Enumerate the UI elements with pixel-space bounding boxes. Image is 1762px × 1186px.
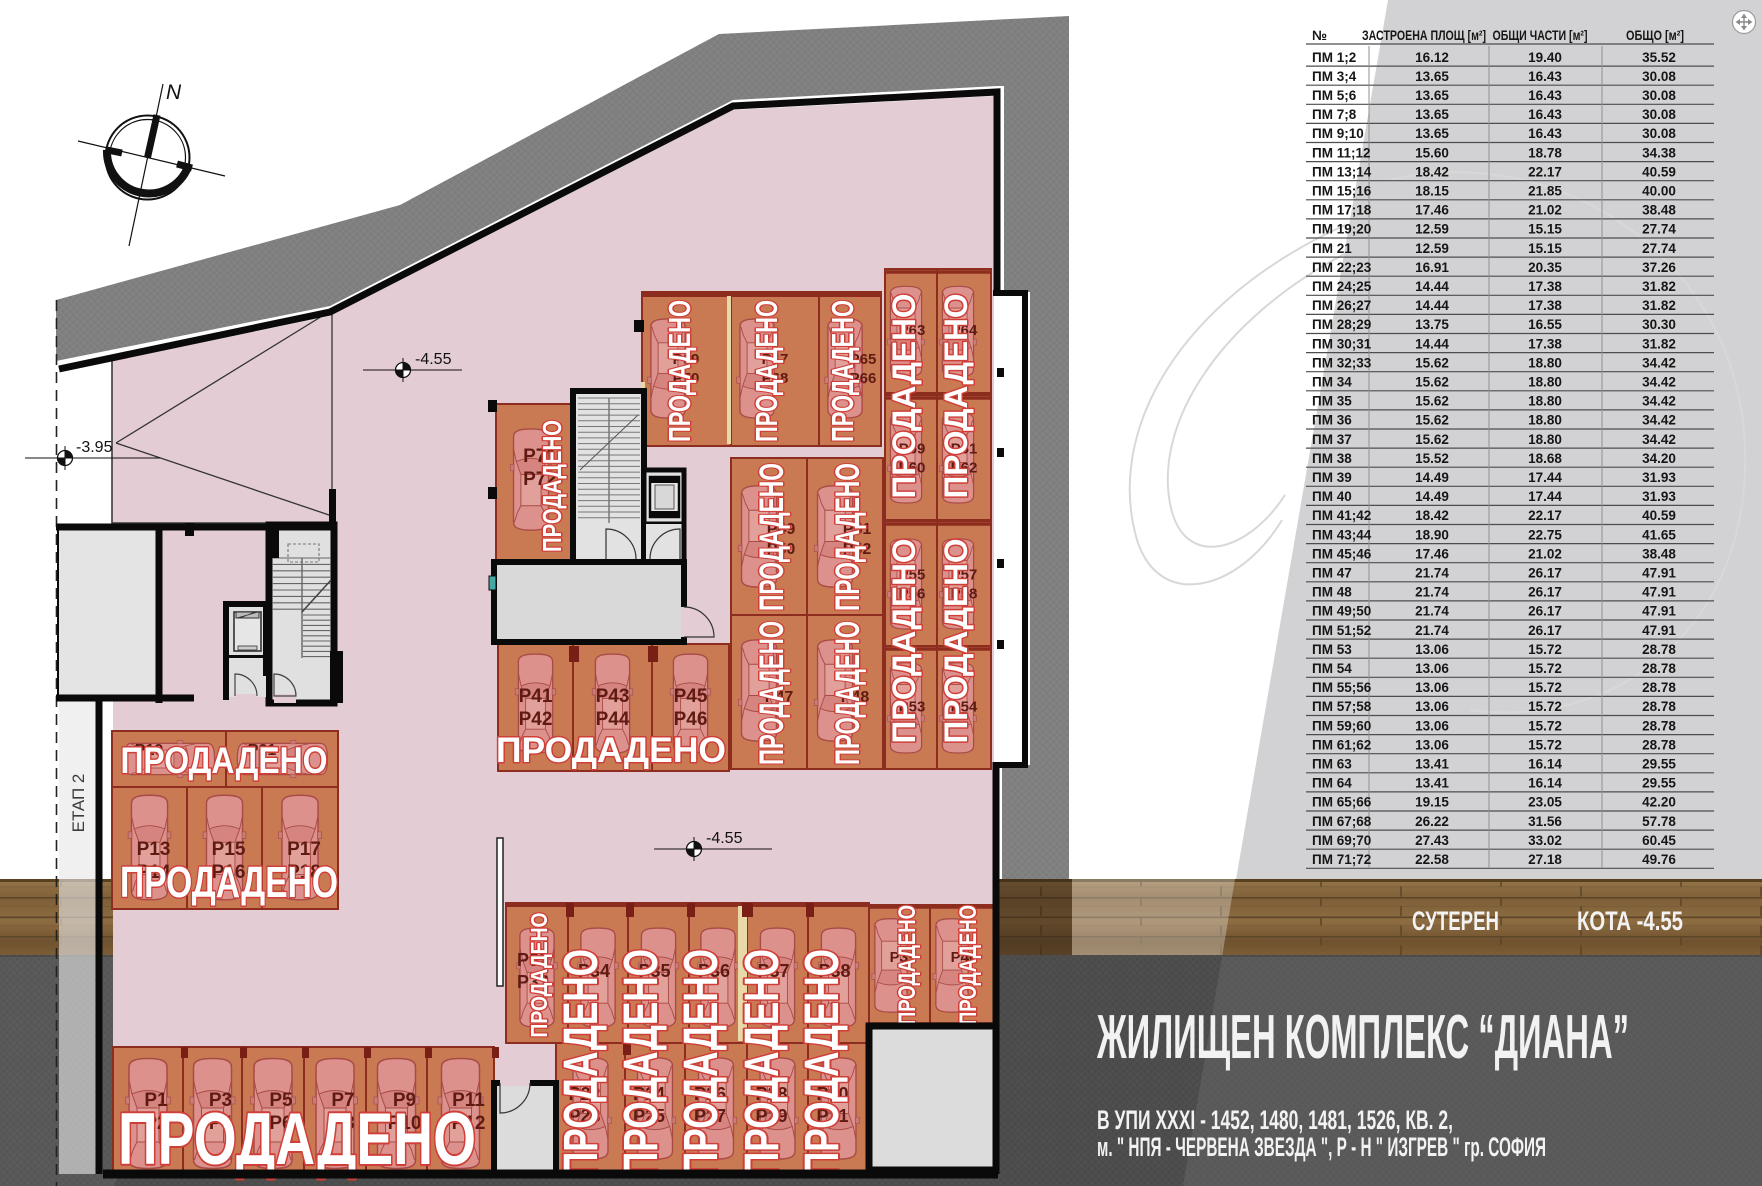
svg-text:16.14: 16.14 (1528, 776, 1562, 791)
svg-text:ПРОДАДЕНО: ПРОДАДЕНО (886, 539, 922, 744)
svg-text:ПРОДАДЕНО: ПРОДАДЕНО (753, 621, 791, 765)
svg-text:13.06: 13.06 (1415, 718, 1449, 733)
svg-text:30.08: 30.08 (1642, 69, 1676, 84)
svg-text:В УПИ XXXI - 1452, 1480, 1481,: В УПИ XXXI - 1452, 1480, 1481, 1526, КВ.… (1097, 1105, 1453, 1135)
svg-text:21.74: 21.74 (1415, 604, 1449, 619)
svg-text:ЖИЛИЩЕН КОМПЛЕКС “ДИАНА”: ЖИЛИЩЕН КОМПЛЕКС “ДИАНА” (1096, 1003, 1629, 1072)
svg-text:ЕТАП 2: ЕТАП 2 (69, 774, 88, 833)
svg-text:27.74: 27.74 (1642, 241, 1676, 256)
svg-text:СУТЕРЕН: СУТЕРЕН (1412, 906, 1499, 936)
svg-text:34.42: 34.42 (1642, 355, 1676, 370)
svg-text:15.62: 15.62 (1415, 432, 1449, 447)
svg-text:29.55: 29.55 (1642, 757, 1676, 772)
svg-text:26.17: 26.17 (1528, 585, 1562, 600)
svg-text:P15: P15 (212, 839, 246, 860)
svg-text:17.46: 17.46 (1415, 546, 1449, 561)
svg-text:ОБЩО [м²]: ОБЩО [м²] (1626, 28, 1684, 43)
svg-text:ПМ 26;27: ПМ 26;27 (1312, 298, 1371, 313)
svg-text:18.80: 18.80 (1528, 432, 1562, 447)
svg-text:ПМ 54: ПМ 54 (1312, 661, 1352, 676)
svg-text:17.46: 17.46 (1415, 203, 1449, 218)
svg-text:13.65: 13.65 (1415, 88, 1449, 103)
svg-text:34.20: 34.20 (1642, 451, 1676, 466)
svg-text:16.43: 16.43 (1528, 107, 1562, 122)
svg-text:13.06: 13.06 (1415, 680, 1449, 695)
svg-text:15.15: 15.15 (1528, 222, 1562, 237)
svg-text:28.78: 28.78 (1642, 718, 1676, 733)
svg-text:ПРОДАДЕНО: ПРОДАДЕНО (736, 949, 789, 1177)
svg-text:16.12: 16.12 (1415, 50, 1449, 65)
svg-text:23.05: 23.05 (1528, 795, 1562, 810)
svg-text:ПМ 21: ПМ 21 (1312, 241, 1352, 256)
svg-text:-4.55: -4.55 (706, 830, 743, 847)
svg-text:ПМ 3;4: ПМ 3;4 (1312, 69, 1357, 84)
svg-text:ПРОДАДЕНО: ПРОДАДЕНО (555, 949, 608, 1177)
svg-text:26.17: 26.17 (1528, 566, 1562, 581)
svg-text:P13: P13 (137, 839, 171, 860)
svg-text:ПРОДАДЕНО: ПРОДАДЕНО (886, 294, 922, 499)
svg-text:ПРОДАДЕНО: ПРОДАДЕНО (796, 949, 849, 1177)
svg-text:16.43: 16.43 (1528, 126, 1562, 141)
svg-text:47.91: 47.91 (1642, 623, 1676, 638)
svg-text:47.91: 47.91 (1642, 585, 1676, 600)
svg-text:38.48: 38.48 (1642, 546, 1676, 561)
svg-text:18.80: 18.80 (1528, 375, 1562, 390)
svg-text:30.08: 30.08 (1642, 107, 1676, 122)
svg-text:34.38: 34.38 (1642, 145, 1676, 160)
svg-text:P17: P17 (287, 839, 321, 860)
svg-text:ПМ 65;66: ПМ 65;66 (1312, 795, 1372, 810)
svg-text:ПРОДАДЕНО: ПРОДАДЕНО (938, 539, 974, 744)
svg-text:22.58: 22.58 (1415, 852, 1449, 867)
svg-text:31.82: 31.82 (1642, 336, 1676, 351)
svg-text:ПМ 55;56: ПМ 55;56 (1312, 680, 1372, 695)
svg-text:-3.95: -3.95 (76, 439, 113, 456)
svg-text:28.78: 28.78 (1642, 642, 1676, 657)
svg-text:22.17: 22.17 (1528, 508, 1562, 523)
svg-text:60.45: 60.45 (1642, 833, 1676, 848)
svg-text:ПМ 9;10: ПМ 9;10 (1312, 126, 1364, 141)
svg-text:28.78: 28.78 (1642, 737, 1676, 752)
svg-text:ПМ 53: ПМ 53 (1312, 642, 1352, 657)
svg-text:ПМ 17;18: ПМ 17;18 (1312, 203, 1372, 218)
svg-text:14.44: 14.44 (1415, 298, 1449, 313)
svg-text:15.72: 15.72 (1528, 737, 1562, 752)
svg-text:47.91: 47.91 (1642, 604, 1676, 619)
svg-text:17.38: 17.38 (1528, 298, 1562, 313)
svg-text:20.35: 20.35 (1528, 260, 1562, 275)
svg-text:26.22: 26.22 (1415, 814, 1449, 829)
svg-text:ПМ 1;2: ПМ 1;2 (1312, 50, 1356, 65)
svg-text:49.76: 49.76 (1642, 852, 1676, 867)
svg-text:ПМ 30;31: ПМ 30;31 (1312, 336, 1372, 351)
svg-text:40.00: 40.00 (1642, 184, 1676, 199)
svg-text:42.20: 42.20 (1642, 795, 1676, 810)
svg-text:ПМ 11;12: ПМ 11;12 (1312, 145, 1370, 160)
svg-text:31.93: 31.93 (1642, 470, 1676, 485)
svg-text:P41: P41 (519, 686, 553, 707)
svg-text:№: № (1312, 28, 1327, 43)
svg-text:17.44: 17.44 (1528, 489, 1562, 504)
svg-text:P46: P46 (674, 709, 708, 730)
svg-text:16.43: 16.43 (1528, 88, 1562, 103)
svg-text:P45: P45 (674, 686, 708, 707)
svg-text:ПРОДАДЕНО: ПРОДАДЕНО (526, 913, 552, 1038)
svg-text:ПМ 22;23: ПМ 22;23 (1312, 260, 1372, 275)
svg-text:ПРОДАДЕНО: ПРОДАДЕНО (537, 420, 567, 552)
svg-text:15.15: 15.15 (1528, 241, 1562, 256)
svg-text:ПМ 34: ПМ 34 (1312, 375, 1352, 390)
svg-text:28.78: 28.78 (1642, 680, 1676, 695)
svg-text:19.40: 19.40 (1528, 50, 1562, 65)
svg-text:ПМ 7;8: ПМ 7;8 (1312, 107, 1357, 122)
svg-text:13.41: 13.41 (1415, 757, 1449, 772)
svg-text:ПМ 36: ПМ 36 (1312, 413, 1352, 428)
svg-text:14.44: 14.44 (1415, 279, 1449, 294)
svg-text:12.59: 12.59 (1415, 241, 1449, 256)
svg-text:ЗАСТРОЕНА ПЛОЩ [м²]: ЗАСТРОЕНА ПЛОЩ [м²] (1362, 28, 1486, 43)
svg-text:16.43: 16.43 (1528, 69, 1562, 84)
svg-text:ПМ 40: ПМ 40 (1312, 489, 1352, 504)
svg-text:ПРОДАДЕНО: ПРОДАДЕНО (615, 949, 668, 1177)
svg-text:ПРОДАДЕНО: ПРОДАДЕНО (118, 1099, 476, 1180)
svg-text:21.74: 21.74 (1415, 623, 1449, 638)
svg-text:15.62: 15.62 (1415, 413, 1449, 428)
svg-text:ПМ 41;42: ПМ 41;42 (1312, 508, 1371, 523)
svg-text:34.42: 34.42 (1642, 375, 1676, 390)
svg-text:ПМ 67;68: ПМ 67;68 (1312, 814, 1372, 829)
svg-text:ПМ 48: ПМ 48 (1312, 585, 1352, 600)
svg-text:12.59: 12.59 (1415, 222, 1449, 237)
svg-text:17.38: 17.38 (1528, 279, 1562, 294)
svg-text:ПМ 64: ПМ 64 (1312, 776, 1352, 791)
svg-text:15.72: 15.72 (1528, 642, 1562, 657)
svg-text:ПРОДАДЕНО: ПРОДАДЕНО (829, 621, 867, 765)
svg-text:21.74: 21.74 (1415, 585, 1449, 600)
svg-text:м. " НПЯ - ЧЕРВЕНА ЗВЕЗДА ", Р: м. " НПЯ - ЧЕРВЕНА ЗВЕЗДА ", Р - Н " ИЗГ… (1097, 1132, 1546, 1162)
svg-text:ПМ 69;70: ПМ 69;70 (1312, 833, 1371, 848)
svg-text:29.55: 29.55 (1642, 776, 1676, 791)
svg-text:ПРОДАДЕНО: ПРОДАДЕНО (749, 300, 784, 442)
svg-text:34.42: 34.42 (1642, 413, 1676, 428)
svg-text:ПМ 49;50: ПМ 49;50 (1312, 604, 1371, 619)
svg-text:P44: P44 (596, 709, 630, 730)
svg-text:34.42: 34.42 (1642, 432, 1676, 447)
svg-text:27.18: 27.18 (1528, 852, 1562, 867)
svg-text:18.80: 18.80 (1528, 413, 1562, 428)
svg-text:ПРОДАДЕНО: ПРОДАДЕНО (938, 294, 974, 499)
svg-text:P43: P43 (596, 686, 630, 707)
svg-text:15.72: 15.72 (1528, 718, 1562, 733)
svg-text:15.62: 15.62 (1415, 375, 1449, 390)
svg-text:27.43: 27.43 (1415, 833, 1449, 848)
svg-text:21.02: 21.02 (1528, 546, 1562, 561)
svg-text:14.49: 14.49 (1415, 470, 1449, 485)
svg-text:22.17: 22.17 (1528, 164, 1562, 179)
svg-text:21.85: 21.85 (1528, 184, 1562, 199)
svg-text:ПМ 13;14: ПМ 13;14 (1312, 164, 1372, 179)
svg-text:ПМ 28;29: ПМ 28;29 (1312, 317, 1371, 332)
svg-text:18.78: 18.78 (1528, 145, 1562, 160)
svg-text:ПРОДАДЕНО: ПРОДАДЕНО (675, 949, 728, 1177)
svg-text:33.02: 33.02 (1528, 833, 1562, 848)
svg-text:15.72: 15.72 (1528, 661, 1562, 676)
svg-text:35.52: 35.52 (1642, 50, 1676, 65)
svg-text:13.75: 13.75 (1415, 317, 1449, 332)
svg-text:18.15: 18.15 (1415, 184, 1449, 199)
svg-text:18.90: 18.90 (1415, 527, 1449, 542)
svg-text:15.72: 15.72 (1528, 699, 1562, 714)
svg-text:ПРОДАДЕНО: ПРОДАДЕНО (894, 905, 921, 1025)
svg-text:ПРОДАДЕНО: ПРОДАДЕНО (825, 300, 860, 442)
svg-text:37.26: 37.26 (1642, 260, 1676, 275)
svg-text:47.91: 47.91 (1642, 566, 1676, 581)
svg-text:13.65: 13.65 (1415, 107, 1449, 122)
svg-text:ПРОДАДЕНО: ПРОДАДЕНО (753, 463, 791, 611)
svg-text:ПМ 61;62: ПМ 61;62 (1312, 737, 1371, 752)
svg-text:34.42: 34.42 (1642, 394, 1676, 409)
svg-text:ПМ 57;58: ПМ 57;58 (1312, 699, 1372, 714)
svg-text:ПМ 24;25: ПМ 24;25 (1312, 279, 1372, 294)
svg-text:17.38: 17.38 (1528, 336, 1562, 351)
svg-text:N: N (166, 81, 182, 104)
svg-text:13.65: 13.65 (1415, 69, 1449, 84)
svg-text:40.59: 40.59 (1642, 164, 1676, 179)
svg-text:38.48: 38.48 (1642, 203, 1676, 218)
svg-text:31.56: 31.56 (1528, 814, 1562, 829)
svg-text:15.52: 15.52 (1415, 451, 1449, 466)
svg-text:ПМ 43;44: ПМ 43;44 (1312, 527, 1372, 542)
svg-text:30.30: 30.30 (1642, 317, 1676, 332)
svg-text:18.42: 18.42 (1415, 508, 1449, 523)
svg-text:16.91: 16.91 (1415, 260, 1449, 275)
svg-text:16.55: 16.55 (1528, 317, 1562, 332)
svg-text:ПМ 63: ПМ 63 (1312, 757, 1352, 772)
svg-text:21.74: 21.74 (1415, 566, 1449, 581)
svg-text:ПМ 59;60: ПМ 59;60 (1312, 718, 1371, 733)
svg-text:26.17: 26.17 (1528, 604, 1562, 619)
svg-text:28.78: 28.78 (1642, 661, 1676, 676)
svg-text:41.65: 41.65 (1642, 527, 1676, 542)
svg-text:18.68: 18.68 (1528, 451, 1562, 466)
svg-text:ПМ 19;20: ПМ 19;20 (1312, 222, 1371, 237)
svg-text:ПМ 39: ПМ 39 (1312, 470, 1352, 485)
svg-text:ПРОДАДЕНО: ПРОДАДЕНО (955, 905, 982, 1025)
svg-text:13.06: 13.06 (1415, 699, 1449, 714)
svg-text:30.08: 30.08 (1642, 126, 1676, 141)
svg-text:-4.55: -4.55 (415, 351, 452, 368)
svg-text:18.80: 18.80 (1528, 355, 1562, 370)
svg-text:ПМ 71;72: ПМ 71;72 (1312, 852, 1371, 867)
svg-text:30.08: 30.08 (1642, 88, 1676, 103)
svg-text:ПРОДАДЕНО: ПРОДАДЕНО (662, 300, 697, 442)
svg-text:22.75: 22.75 (1528, 527, 1562, 542)
svg-text:31.93: 31.93 (1642, 489, 1676, 504)
svg-text:ПМ 35: ПМ 35 (1312, 394, 1352, 409)
svg-text:26.17: 26.17 (1528, 623, 1562, 638)
svg-text:ПМ 5;6: ПМ 5;6 (1312, 88, 1357, 103)
svg-text:ПРОДАДЕНО: ПРОДАДЕНО (121, 740, 328, 781)
svg-text:15.62: 15.62 (1415, 394, 1449, 409)
svg-text:15.60: 15.60 (1415, 145, 1449, 160)
svg-text:ПМ 45;46: ПМ 45;46 (1312, 546, 1372, 561)
svg-text:19.15: 19.15 (1415, 795, 1449, 810)
svg-text:P42: P42 (519, 709, 553, 730)
svg-text:57.78: 57.78 (1642, 814, 1676, 829)
svg-text:ПРОДАДЕНО: ПРОДАДЕНО (120, 858, 338, 907)
svg-text:31.82: 31.82 (1642, 279, 1676, 294)
svg-text:КОТА -4.55: КОТА -4.55 (1577, 906, 1683, 936)
svg-text:14.44: 14.44 (1415, 336, 1449, 351)
svg-text:13.06: 13.06 (1415, 737, 1449, 752)
svg-text:18.80: 18.80 (1528, 394, 1562, 409)
svg-text:16.14: 16.14 (1528, 757, 1562, 772)
svg-text:13.65: 13.65 (1415, 126, 1449, 141)
svg-text:31.82: 31.82 (1642, 298, 1676, 313)
svg-text:13.41: 13.41 (1415, 776, 1449, 791)
svg-text:27.74: 27.74 (1642, 222, 1676, 237)
svg-text:40.59: 40.59 (1642, 508, 1676, 523)
svg-text:ОБЩИ ЧАСТИ [м²]: ОБЩИ ЧАСТИ [м²] (1493, 28, 1588, 43)
svg-text:14.49: 14.49 (1415, 489, 1449, 504)
svg-text:17.44: 17.44 (1528, 470, 1562, 485)
svg-text:ПМ 51;52: ПМ 51;52 (1312, 623, 1371, 638)
svg-text:ПМ 15;16: ПМ 15;16 (1312, 184, 1372, 199)
svg-text:ПМ 47: ПМ 47 (1312, 566, 1352, 581)
svg-text:15.62: 15.62 (1415, 355, 1449, 370)
svg-text:ПРОДАДЕНО: ПРОДАДЕНО (829, 463, 867, 611)
svg-text:ПМ 38: ПМ 38 (1312, 451, 1352, 466)
svg-text:28.78: 28.78 (1642, 699, 1676, 714)
svg-text:15.72: 15.72 (1528, 680, 1562, 695)
svg-text:18.42: 18.42 (1415, 164, 1449, 179)
svg-text:ПМ 37: ПМ 37 (1312, 432, 1352, 447)
svg-text:13.06: 13.06 (1415, 642, 1449, 657)
svg-text:13.06: 13.06 (1415, 661, 1449, 676)
svg-text:ПМ 32;33: ПМ 32;33 (1312, 355, 1372, 370)
svg-text:21.02: 21.02 (1528, 203, 1562, 218)
svg-text:ПРОДАДЕНО: ПРОДАДЕНО (496, 731, 726, 770)
